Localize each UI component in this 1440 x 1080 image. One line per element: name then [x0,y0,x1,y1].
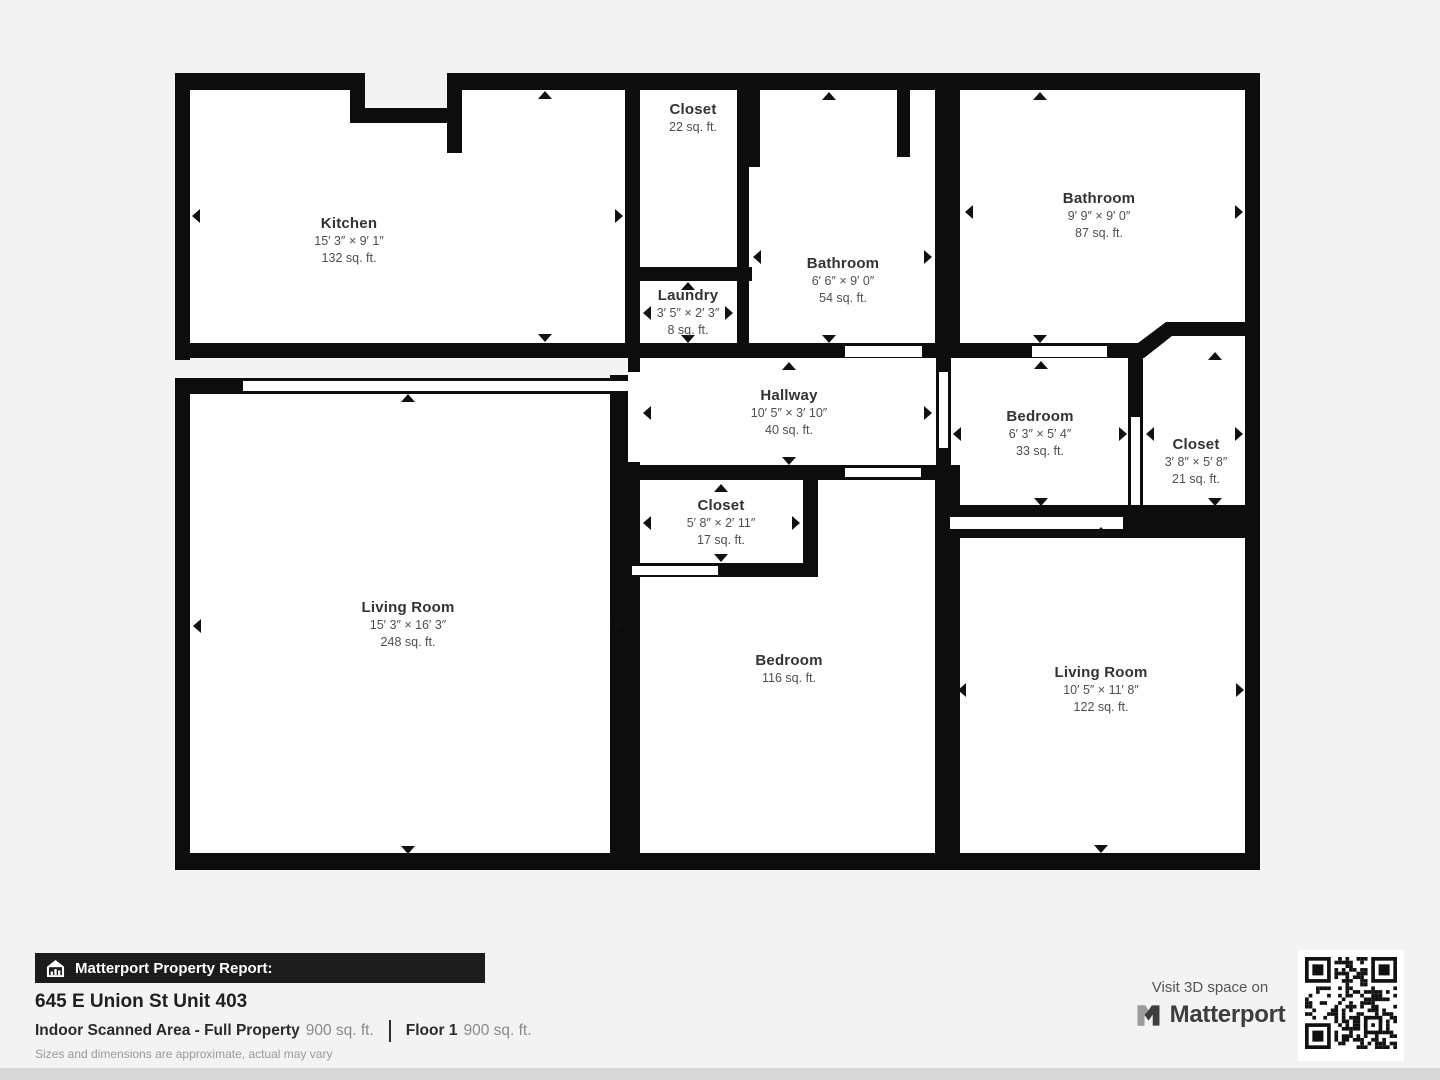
matterport-house-icon [46,959,65,978]
report-banner-label: Matterport Property Report: [75,960,273,977]
floor-value: 900 sq. ft. [463,1022,531,1040]
matterport-logo: Matterport [1135,1001,1286,1029]
info-divider [389,1020,391,1042]
matterport-3d-link[interactable]: Visit 3D space on Matterport [1095,979,1325,1029]
matterport-m-icon [1135,1002,1162,1029]
matterport-wordmark: Matterport [1170,1001,1286,1029]
room-label-bathroom-small: Bathroom 6′ 6″ × 9′ 0″ 54 sq. ft. [807,255,879,307]
scanned-area-line: Indoor Scanned Area - Full Property 900 … [35,1020,532,1042]
bottom-page-strip [0,1068,1440,1080]
qr-code-image [1305,957,1397,1049]
disclaimer-text: Sizes and dimensions are approximate, ac… [35,1047,332,1061]
room-label-bedroom-main: Bedroom 116 sq. ft. [755,652,822,687]
scanned-area-value: 900 sq. ft. [306,1022,374,1040]
visit-3d-text: Visit 3D space on [1152,979,1268,996]
room-label-closet-right: Closet 3′ 8″ × 5′ 8″ 21 sq. ft. [1165,436,1228,488]
property-address: 645 E Union St Unit 403 [35,991,247,1013]
room-label-bedroom-small: Bedroom 6′ 3″ × 5′ 4″ 33 sq. ft. [1006,408,1073,460]
qr-code [1298,950,1404,1061]
room-label-living-room-main: Living Room 15′ 3″ × 16′ 3″ 248 sq. ft. [361,599,454,651]
floor-label: Floor 1 [406,1022,458,1040]
room-label-kitchen: Kitchen 15′ 3″ × 9′ 1″ 132 sq. ft. [314,215,384,267]
room-label-closet-top: Closet 22 sq. ft. [669,101,717,136]
scanned-area-label: Indoor Scanned Area - Full Property [35,1022,300,1040]
room-label-closet-middle: Closet 5′ 8″ × 2′ 11″ 17 sq. ft. [687,497,756,549]
room-label-bathroom-large: Bathroom 9′ 9″ × 9′ 0″ 87 sq. ft. [1063,190,1135,242]
room-label-hallway: Hallway 10′ 5″ × 3′ 10″ 40 sq. ft. [751,387,827,439]
room-label-living-room-right: Living Room 10′ 5″ × 11′ 8″ 122 sq. ft. [1054,664,1147,716]
report-banner: Matterport Property Report: [35,953,485,983]
room-label-laundry: Laundry 3′ 5″ × 2′ 3″ 8 sq. ft. [657,287,720,339]
